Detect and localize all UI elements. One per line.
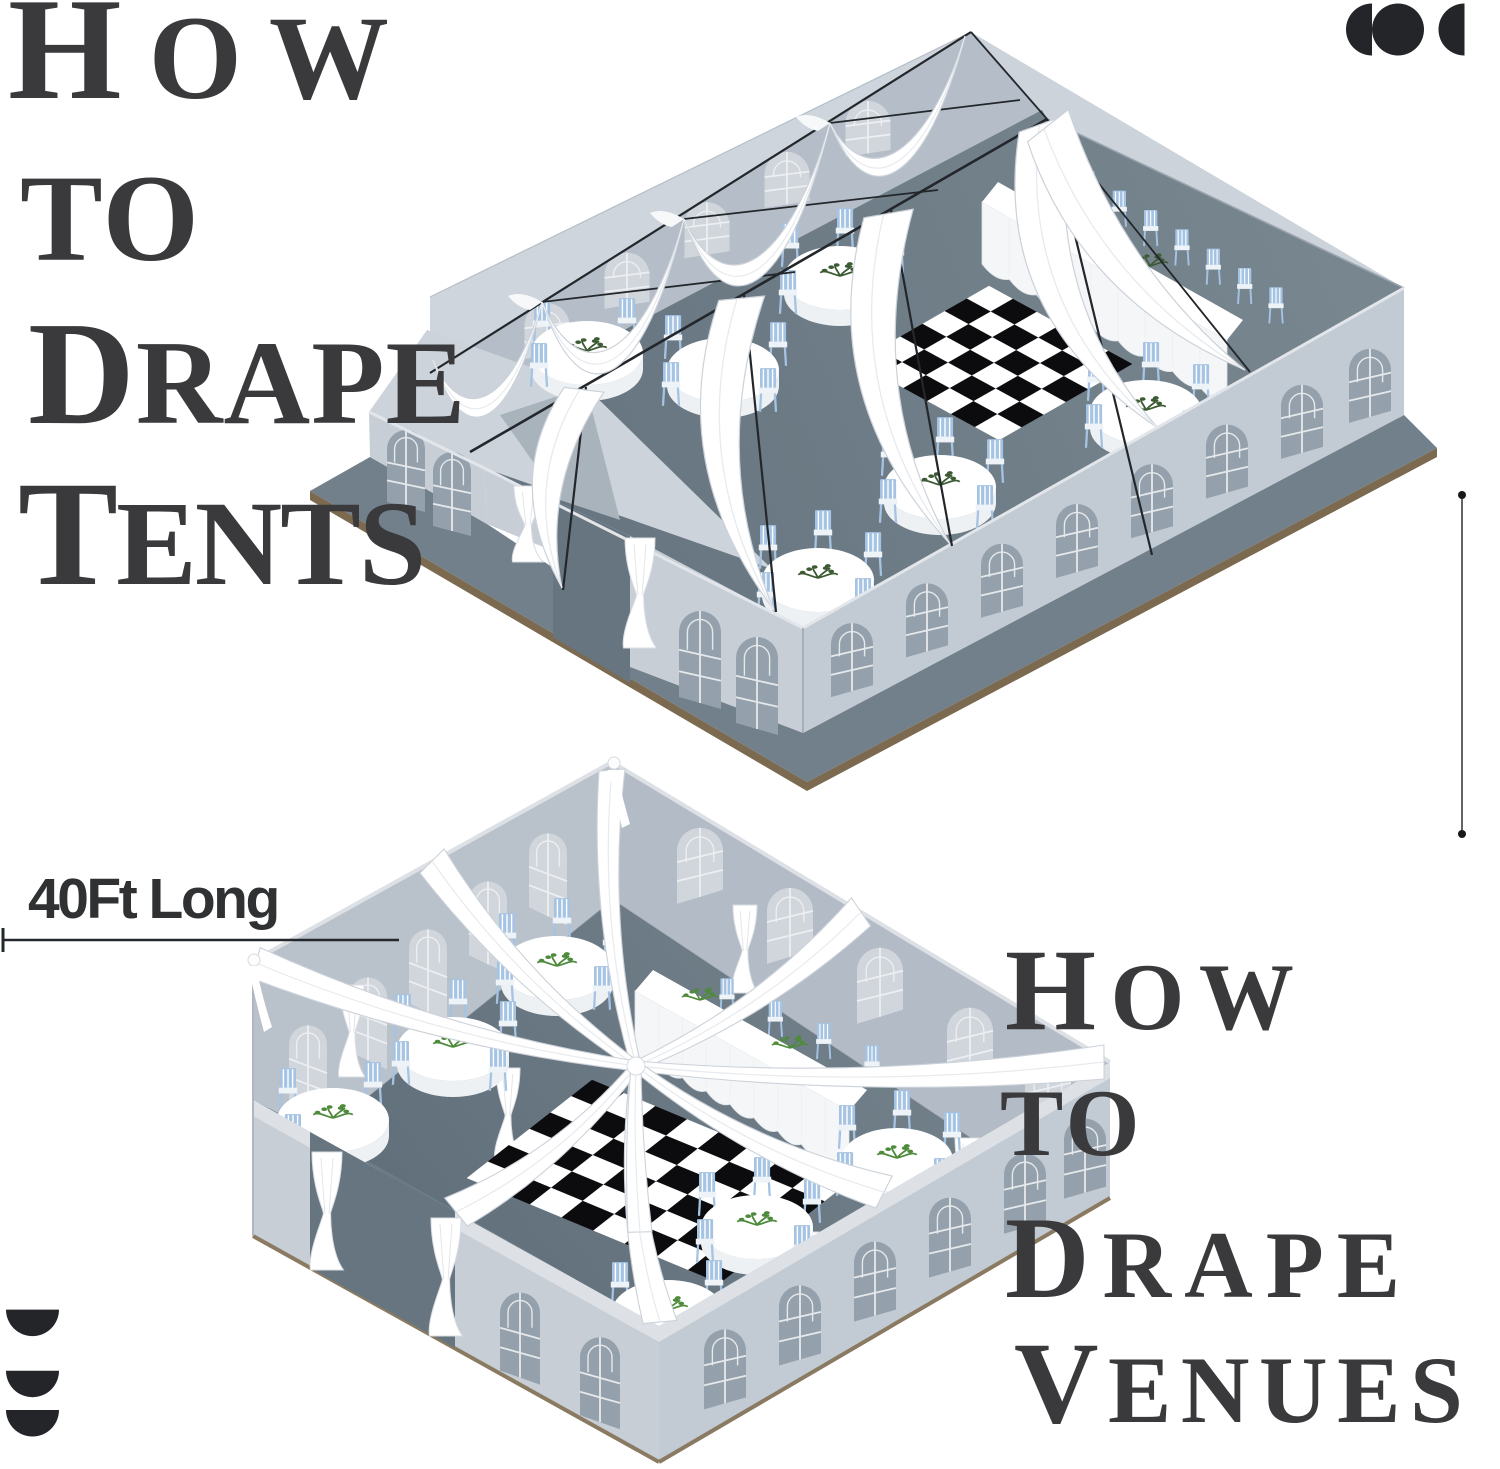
svg-text:DRAPE: DRAPE [1005,1194,1413,1323]
svg-text:VENUES: VENUES [1014,1319,1472,1448]
svg-text:HOW: HOW [8,0,416,130]
svg-text:40Ft Long: 40Ft Long [28,867,278,931]
svg-text:TO: TO [1000,1070,1144,1176]
svg-text:TO: TO [20,150,201,287]
svg-text:DRAPE: DRAPE [28,292,467,456]
svg-text:HOW: HOW [1005,926,1308,1055]
